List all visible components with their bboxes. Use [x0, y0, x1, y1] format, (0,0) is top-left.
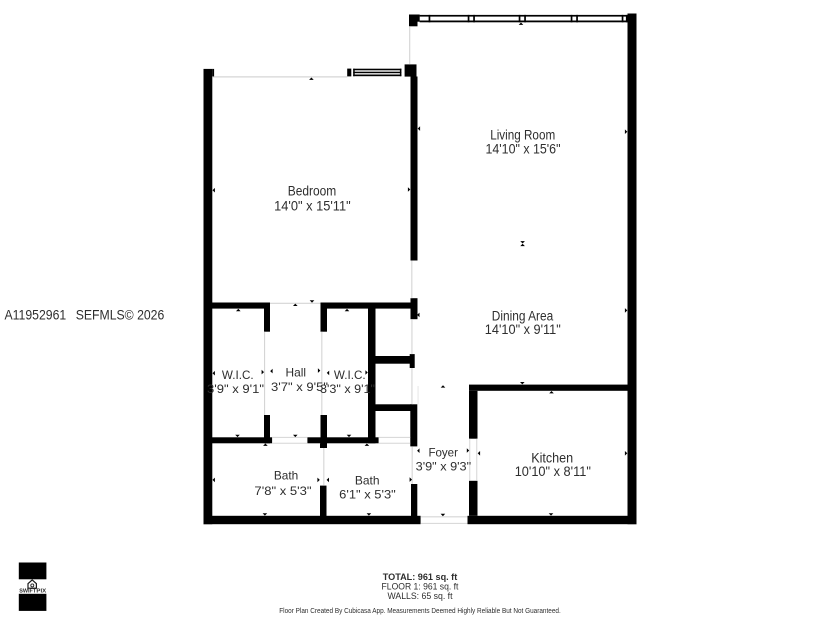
svg-text:14'0" x 15'11": 14'0" x 15'11" [274, 198, 351, 214]
svg-text:Floor Plan Created By Cubicasa: Floor Plan Created By Cubicasa App. Meas… [279, 608, 561, 615]
svg-text:Hall: Hall [286, 367, 307, 380]
svg-text:Bath: Bath [274, 470, 298, 483]
svg-text:WALLS: 65 sq. ft: WALLS: 65 sq. ft [388, 591, 453, 601]
svg-text:A11952961 SEFMLS© 2026: A11952961 SEFMLS© 2026 [5, 308, 165, 323]
svg-text:W.I.C.: W.I.C. [222, 369, 254, 382]
svg-text:Bedroom: Bedroom [288, 183, 337, 199]
svg-text:6'1" x 5'3": 6'1" x 5'3" [339, 488, 396, 501]
svg-text:3'3" x 9'1": 3'3" x 9'1" [320, 383, 375, 396]
svg-text:3'9" x 9'1": 3'9" x 9'1" [207, 383, 264, 396]
svg-text:14'10" x 15'6": 14'10" x 15'6" [486, 141, 561, 157]
svg-text:Bath: Bath [355, 475, 380, 488]
svg-text:PIX: PIX [36, 589, 46, 595]
svg-text:SWIFT: SWIFT [19, 589, 37, 595]
svg-text:14'10" x 9'11": 14'10" x 9'11" [485, 321, 561, 337]
svg-text:W.I.C.: W.I.C. [334, 369, 366, 382]
svg-text:3'9" x 9'3": 3'9" x 9'3" [416, 460, 472, 473]
svg-text:10'10" x 8'11": 10'10" x 8'11" [515, 463, 591, 479]
svg-text:Foyer: Foyer [428, 446, 458, 459]
svg-text:7'8" x 5'3": 7'8" x 5'3" [254, 485, 311, 498]
